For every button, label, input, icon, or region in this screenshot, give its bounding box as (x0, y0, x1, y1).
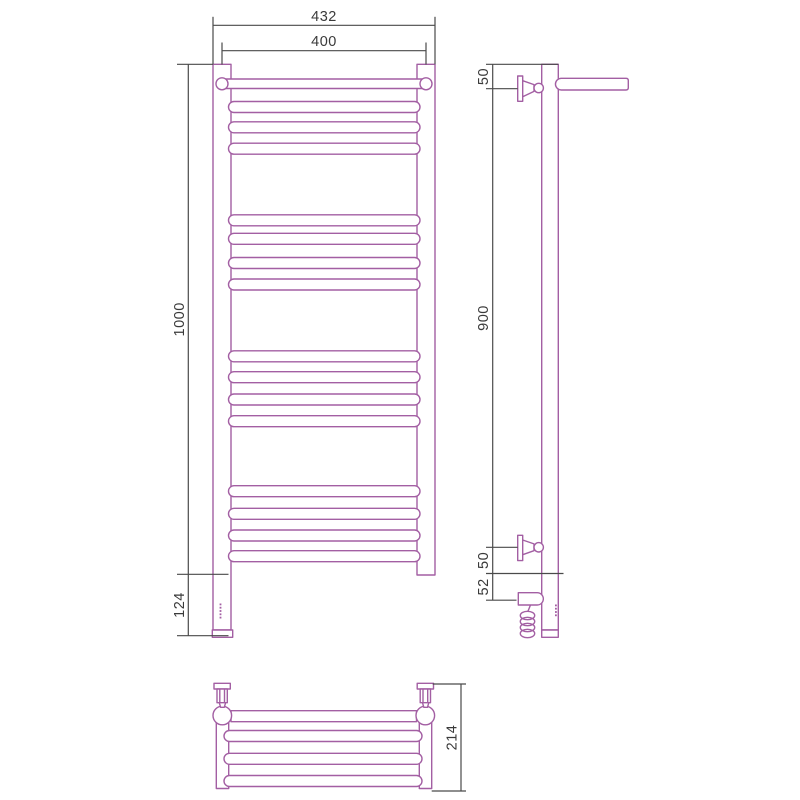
rung (229, 102, 421, 113)
dim-label-50-top: 50 (476, 68, 492, 85)
bottom-view (213, 683, 435, 788)
dim-label-432: 432 (311, 9, 337, 25)
rung (229, 551, 421, 562)
bracket-ball (534, 83, 543, 92)
side-element-foot (542, 630, 559, 637)
rung (224, 731, 422, 742)
dim-label-52: 52 (476, 578, 492, 595)
side-post (542, 64, 559, 630)
bracket-flange (518, 535, 523, 560)
bracket-neck (219, 703, 225, 708)
dim-label-214: 214 (445, 725, 461, 751)
rung (229, 486, 421, 497)
rung (229, 394, 421, 405)
technical-drawing-canvas: 432 400 1000 124 50 900 50 52 214 (0, 0, 800, 800)
dim-label-1000: 1000 (172, 302, 188, 336)
bracket-cone (523, 540, 534, 555)
bracket-body (217, 689, 227, 703)
rung (224, 776, 422, 787)
front-right-post (417, 64, 435, 575)
bottom-left-collar (213, 706, 232, 725)
rung (229, 233, 421, 244)
bracket-body (420, 689, 430, 703)
rung (229, 143, 421, 154)
bracket-neck (423, 703, 429, 708)
bracket-cone (523, 81, 534, 97)
bracket-ball (534, 543, 543, 552)
bottom-top-bar (231, 711, 417, 722)
front-left-collar (216, 78, 228, 90)
rung (229, 215, 421, 226)
rung (229, 530, 421, 541)
rung (229, 508, 421, 519)
coil-loop (520, 629, 534, 637)
power-cord-lead (528, 605, 531, 612)
bottom-left-bracket (214, 683, 230, 707)
rung (229, 416, 421, 427)
rung (224, 753, 422, 764)
front-top-crossbar (222, 79, 426, 89)
wall-bracket-bottom (518, 535, 544, 560)
dim-label-124: 124 (172, 592, 188, 618)
dim-label-900: 900 (476, 305, 492, 331)
side-view (518, 64, 629, 637)
bracket-flange (214, 683, 230, 689)
drawing-sheet: 432 400 1000 124 50 900 50 52 214 (0, 0, 800, 800)
heating-element-body (518, 593, 543, 605)
bracket-flange (417, 683, 433, 689)
bottom-rungs (224, 731, 422, 787)
front-right-collar (420, 78, 432, 90)
dim-label-50-bottom: 50 (476, 552, 492, 569)
dim-label-400: 400 (311, 34, 337, 50)
rung (229, 351, 421, 362)
rung (229, 279, 421, 290)
side-top-rung (555, 78, 628, 90)
front-rungs (229, 102, 421, 562)
bottom-right-collar (416, 706, 435, 725)
bracket-flange (518, 76, 523, 101)
wall-bracket-top (518, 76, 544, 101)
front-view (212, 64, 435, 637)
rung (229, 372, 421, 383)
rung (229, 258, 421, 269)
rung (229, 122, 421, 133)
power-cord-coil (520, 611, 534, 637)
bottom-right-bracket (417, 683, 433, 707)
